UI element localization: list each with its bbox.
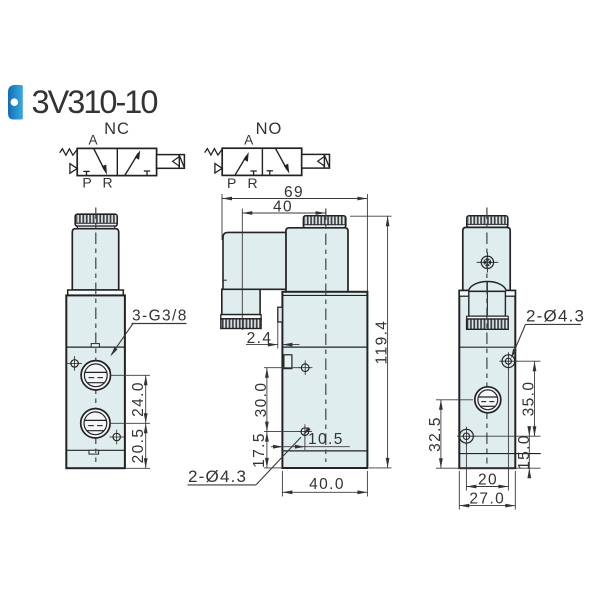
svg-text:30.0: 30.0 [253,382,270,418]
svg-text:119.4: 119.4 [373,320,390,365]
svg-text:2-Ø4.3: 2-Ø4.3 [188,467,247,486]
svg-text:17.5: 17.5 [251,432,268,468]
svg-text:NC: NC [104,120,130,138]
svg-text:20.5: 20.5 [130,428,147,464]
svg-text:40: 40 [273,199,293,216]
svg-text:20: 20 [478,472,498,489]
svg-text:A: A [244,133,253,148]
svg-text:NO: NO [256,120,283,138]
svg-text:A: A [88,133,97,148]
svg-text:2.4: 2.4 [247,330,273,347]
svg-text:15.0: 15.0 [516,434,533,470]
svg-text:2-Ø4.3: 2-Ø4.3 [526,307,585,326]
svg-text:40.0: 40.0 [309,476,345,493]
svg-text:24.0: 24.0 [130,381,147,417]
svg-text:R: R [102,175,112,191]
svg-text:32.5: 32.5 [427,416,444,452]
svg-text:3-G3/8: 3-G3/8 [132,308,188,325]
svg-text:P: P [82,175,91,191]
svg-text:27.0: 27.0 [469,491,505,508]
svg-text:35.0: 35.0 [521,381,538,417]
svg-text:P: P [227,175,236,191]
svg-text:3V310-10: 3V310-10 [32,84,158,120]
svg-text:R: R [248,175,258,191]
svg-text:10.5: 10.5 [308,431,344,448]
